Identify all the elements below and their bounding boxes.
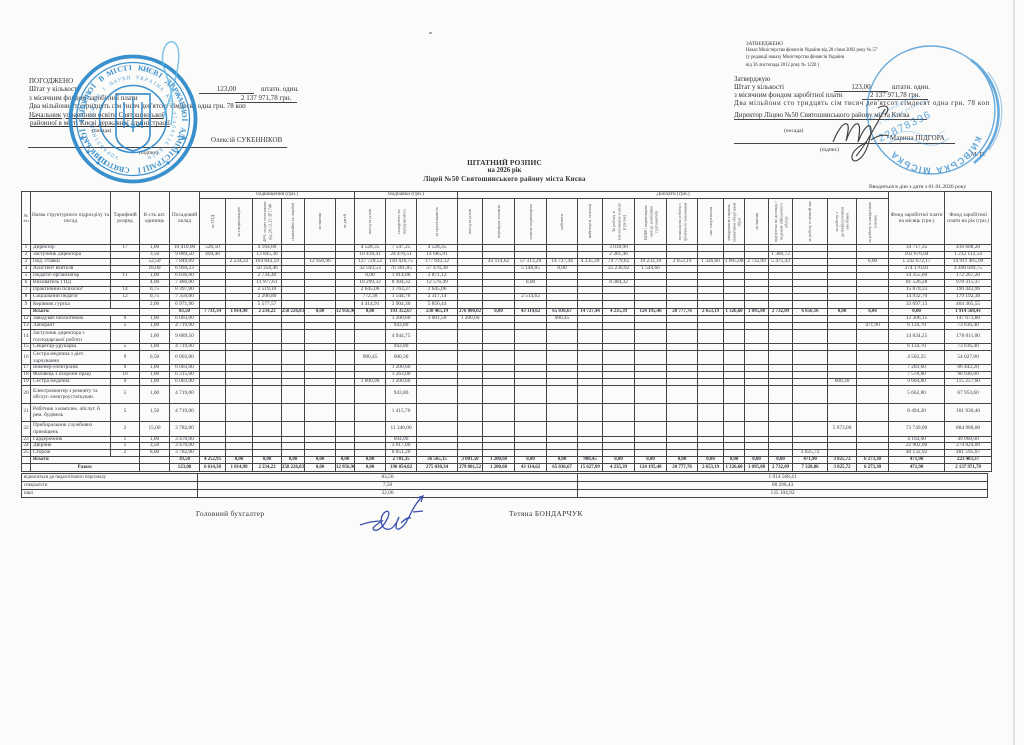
svg-text:І: І (102, 87, 108, 93)
svg-text:КИЇВСЬКА МІСЬКА: КИЇВСЬКА МІСЬКА (888, 135, 984, 176)
svg-text:Я: Я (89, 124, 96, 129)
svg-text:Т: Т (122, 63, 128, 73)
svg-text:Ї: Ї (78, 128, 87, 133)
svg-text:В: В (96, 73, 106, 83)
svg-text:І: І (129, 63, 132, 72)
svg-text:И: И (126, 75, 131, 81)
svg-text:І: І (142, 165, 147, 174)
svg-text:Ї: Ї (137, 165, 141, 174)
svg-text:В: В (146, 153, 152, 160)
